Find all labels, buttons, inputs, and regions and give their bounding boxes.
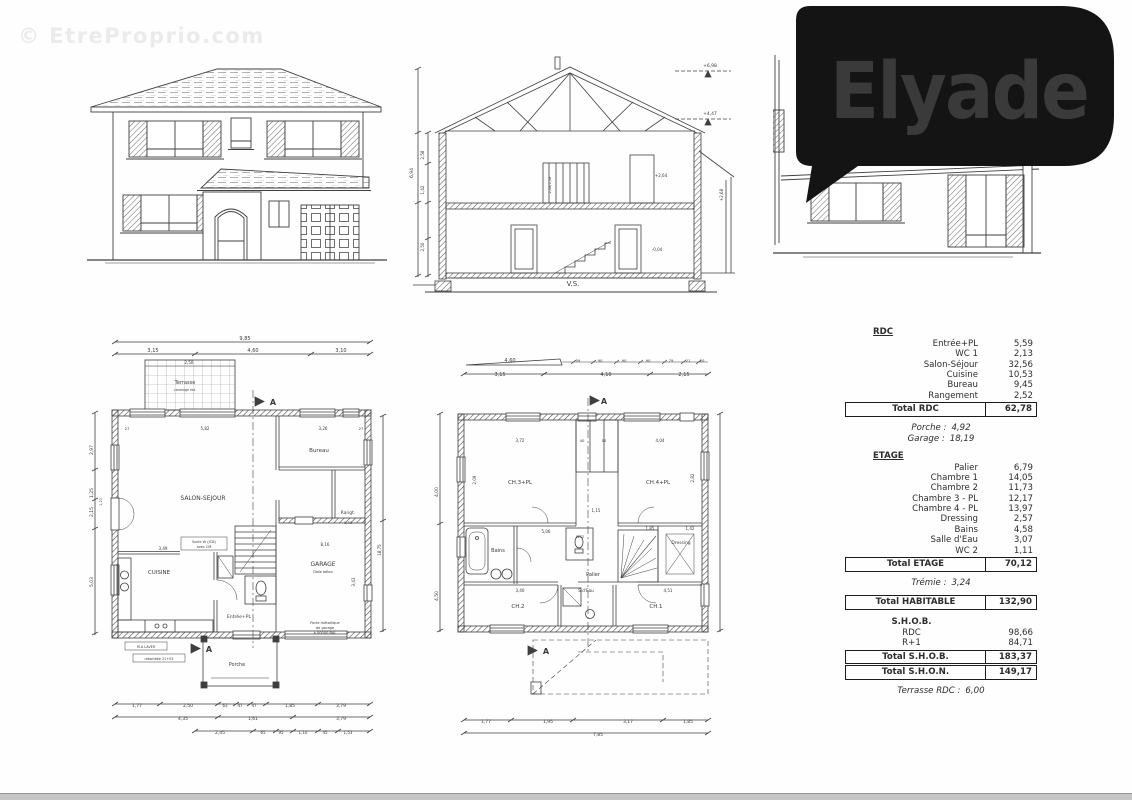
- drawing-label: 1,20: [99, 498, 103, 506]
- area-row: Total S.H.O.N. 149,17: [845, 665, 1037, 680]
- area-row-label: Bains: [845, 526, 987, 535]
- drawing-label: 3,15: [147, 348, 158, 354]
- drawing-label: 4,50: [434, 591, 440, 601]
- drawing-label: Porche: [229, 662, 245, 668]
- watermark: © EtreProprio.com: [18, 24, 265, 48]
- area-row-value: 149,17: [986, 668, 1036, 677]
- area-row: Porche : 4,92: [845, 423, 1037, 433]
- drawing-label: GARAGE: [310, 561, 335, 568]
- drawing-label: 9,85: [239, 336, 250, 342]
- drawing-label: 21: [686, 358, 691, 363]
- logo-text: Elyade: [830, 47, 1088, 137]
- area-row: Chambre 4 - PL 13,97: [845, 504, 1037, 514]
- drawing-label: 20: [700, 358, 705, 363]
- drawing-label: Palier: [586, 572, 601, 578]
- drawing-label: 5,82: [201, 426, 210, 431]
- drawing-label: 2,45: [215, 730, 225, 736]
- drawing-label: 90: [598, 358, 603, 363]
- drawing-label: à 00000 RAL: [314, 631, 337, 635]
- drawing-label: 18,75: [377, 544, 382, 556]
- area-row: Bureau 9,45: [845, 381, 1037, 391]
- area-row-value: 62,78: [986, 405, 1036, 414]
- area-row: Palier 6,79: [845, 463, 1037, 473]
- drawing-label: A: [543, 647, 550, 656]
- area-table: RDC Entrée+PL 5,59 WC 1 2,13 Salon-Séjou…: [845, 326, 1037, 697]
- drawing-label: Socle W (JCB): [192, 540, 216, 544]
- drawing-label: avec CM: [197, 545, 212, 549]
- area-row-value: 183,37: [986, 653, 1036, 662]
- drawing-label: 1,85: [285, 703, 295, 709]
- drawing-label: -0,04: [652, 247, 663, 252]
- area-row: Dressing 2,57: [845, 515, 1037, 525]
- area-row-label: Cuisine: [845, 371, 987, 380]
- drawing-label: Dalle béton: [313, 570, 333, 574]
- drawing-label: A: [206, 645, 213, 654]
- drawing-label: Rangt.: [341, 510, 356, 516]
- drawing-label: 8,16: [321, 542, 330, 547]
- area-row: S.H.O.B.: [845, 616, 1037, 628]
- drawing-label: 1,25: [89, 488, 95, 498]
- drawing-label: 2,15: [89, 507, 95, 517]
- area-row-value: 98,66: [987, 629, 1037, 638]
- drawing-label: de garage: [316, 626, 335, 630]
- drawing-label: 2,97: [89, 445, 95, 455]
- drawing-label: 47: [237, 703, 243, 708]
- drawing-label: 65: [260, 730, 266, 735]
- drawing-label: Dressing: [671, 540, 690, 546]
- drawing-label: CH.4+PL: [646, 480, 671, 486]
- scanned-plan-page: © EtreProprio.com: [0, 0, 1132, 800]
- drawing-label: Porte métallique: [310, 621, 340, 625]
- area-row-label: Rangement: [845, 392, 987, 401]
- area-row: Entrée+PL 5,59: [845, 339, 1037, 349]
- drawing-label: CH.1: [649, 604, 662, 610]
- area-row-label: WC 1: [845, 350, 987, 359]
- area-row-value: 32,56: [987, 361, 1037, 370]
- area-row-label: S.H.O.B.: [845, 618, 987, 627]
- drawing-label: 3,49: [159, 546, 168, 551]
- area-row-label: Chambre 4 - PL: [845, 505, 987, 514]
- area-row-value: 2,52: [987, 392, 1037, 401]
- drawing-label: 3,17: [623, 719, 633, 725]
- area-row-label: Salon-Séjour: [845, 361, 987, 370]
- drawing-label: 2,82: [690, 473, 695, 482]
- area-row-value: 3,24: [951, 579, 970, 588]
- drawing-label: Bains: [491, 548, 505, 554]
- drawing-label: 1,15: [592, 508, 601, 513]
- drawing-label: 2,58: [420, 150, 425, 159]
- area-row-value: 70,12: [986, 560, 1036, 569]
- area-row-label: Chambre 1: [845, 474, 987, 483]
- area-row-value: 1,11: [987, 547, 1037, 556]
- area-row-label: Trémie :: [911, 579, 946, 588]
- drawing-label: 3,15: [494, 372, 505, 378]
- area-row-value: 11,73: [987, 484, 1037, 493]
- drawing-label: Bureau: [309, 448, 329, 454]
- area-row-label: Entrée+PL: [845, 340, 987, 349]
- area-row-value: 10,53: [987, 371, 1037, 380]
- area-row: Total RDC 62,78: [845, 402, 1037, 417]
- area-row-label: Total ETAGE: [846, 558, 986, 571]
- area-row-value: 13,97: [987, 505, 1037, 514]
- area-row-value: 84,71: [987, 639, 1037, 648]
- area-row: ETAGE: [845, 450, 1037, 463]
- area-row-value: 6,79: [987, 464, 1037, 473]
- area-row-label: RDC: [845, 629, 987, 638]
- drawing-label: carrelage ext.: [174, 388, 196, 392]
- scan-edge-band: [0, 793, 1132, 800]
- drawing-label: 90: [646, 358, 651, 363]
- cross-section-drawing: V.S.+6,98+4,47+2,64-0,04+2,686,942,581,4…: [405, 55, 735, 295]
- drawing-label: V.S.: [567, 280, 580, 288]
- drawing-label: +2,64: [655, 173, 668, 178]
- area-row: Bains 4,58: [845, 525, 1037, 535]
- drawing-label: +6,98: [703, 63, 717, 69]
- drawing-label: 4,04: [656, 438, 665, 443]
- area-row: [845, 589, 1037, 595]
- drawing-label: 3,26: [319, 426, 328, 431]
- drawing-label: 3,40: [516, 588, 525, 593]
- drawing-label: SALON-SEJOUR: [180, 495, 225, 502]
- area-row: Salon-Séjour 32,56: [845, 360, 1037, 370]
- elyade-logo: Elyade: [796, 6, 1114, 206]
- area-row-label: R+1: [845, 639, 987, 648]
- area-row: Total HABITABLE 132,90: [845, 595, 1037, 610]
- drawing-label: 2,09: [472, 475, 477, 484]
- drawing-label: 1,85: [646, 526, 655, 531]
- drawing-label: CH.3+PL: [508, 480, 533, 486]
- drawing-label: 6,94: [409, 168, 415, 178]
- drawing-label: WC2: [576, 535, 584, 539]
- area-row: Trémie : 3,24: [845, 578, 1037, 588]
- rdc-floor-plan-drawing: 9,853,154,603,102,50Terrassecarrelage ex…: [85, 330, 400, 745]
- drawing-label: CUISINE: [148, 570, 171, 576]
- drawing-label: 47: [251, 703, 257, 708]
- area-row-value: 3,07: [987, 536, 1037, 545]
- area-row: Total ETAGE 70,12: [845, 557, 1037, 572]
- drawing-label: 4,60: [504, 358, 515, 364]
- area-row: Cuisine 10,53: [845, 370, 1037, 380]
- area-row-label: Dressing: [845, 515, 987, 524]
- area-row: RDC: [845, 326, 1037, 339]
- front-elevation-drawing: [85, 55, 400, 280]
- area-row: Garage : 18,19: [845, 434, 1037, 444]
- area-row-label: Total S.H.O.N.: [846, 666, 986, 679]
- area-row-value: 14,05: [987, 474, 1037, 483]
- area-row: RDC 98,66: [845, 628, 1037, 638]
- area-row-label: Bureau: [845, 381, 987, 390]
- drawing-label: 1,85: [683, 719, 693, 725]
- drawing-label: 1,42: [686, 526, 695, 531]
- drawing-label: 45: [322, 730, 328, 735]
- drawing-label: 5,06: [542, 529, 551, 534]
- drawing-label: 40: [580, 438, 585, 443]
- drawing-label: 27: [359, 426, 364, 431]
- drawing-label: 79: [669, 358, 674, 363]
- drawing-label: 27: [125, 426, 130, 431]
- drawing-label: Entrée+PL: [227, 613, 252, 620]
- drawing-label: 59: [576, 358, 581, 363]
- area-row-label: Porche :: [911, 424, 946, 433]
- drawing-label: A: [601, 397, 608, 406]
- drawing-label: A: [270, 398, 277, 407]
- area-row-label: Terrasse RDC :: [897, 687, 960, 696]
- area-row-value: 12,17: [987, 495, 1037, 504]
- area-row: Chambre 1 14,05: [845, 473, 1037, 483]
- drawing-label: 95: [278, 730, 284, 735]
- area-row-label: Total S.H.O.B.: [846, 651, 986, 664]
- area-row: Chambre 2 11,73: [845, 483, 1037, 493]
- drawing-label: 4,60: [247, 348, 258, 354]
- drawing-label: 2,50: [185, 360, 194, 365]
- drawing-label: 1,42: [420, 185, 425, 194]
- area-row-value: 2,57: [987, 515, 1037, 524]
- area-row: Chambre 3 - PL 12,17: [845, 494, 1037, 504]
- drawing-label: Terrasse: [174, 380, 196, 386]
- drawing-label: 2,50: [183, 703, 193, 709]
- area-row-value: 18,19: [950, 435, 975, 444]
- drawing-label: 2,48/2,58: [548, 177, 552, 194]
- drawing-label: +4,47: [703, 111, 717, 117]
- drawing-label: 7,85: [593, 732, 603, 738]
- drawing-label: 1,77: [481, 719, 491, 725]
- area-row-label: WC 2: [845, 547, 987, 556]
- area-row-label: Garage :: [908, 435, 945, 444]
- area-row: Rangement 2,52: [845, 391, 1037, 401]
- area-row-value: 6,00: [965, 687, 984, 696]
- area-row-label: Salle d'Eau: [845, 536, 987, 545]
- drawing-label: 4,35: [178, 716, 188, 722]
- drawing-label: S.d'Eau: [578, 588, 594, 593]
- area-row-value: 9,45: [987, 381, 1037, 390]
- area-row-label: ETAGE: [845, 452, 987, 461]
- drawing-label: 3,79: [336, 703, 346, 709]
- area-row-value: 4,92: [951, 424, 970, 433]
- drawing-label: 3,43: [351, 577, 356, 586]
- drawing-label: 90: [622, 358, 627, 363]
- area-row-label: Total RDC: [846, 403, 986, 416]
- drawing-label: 2,50: [420, 242, 425, 251]
- drawing-label: 5,03: [89, 577, 95, 587]
- area-row-label: Total HABITABLE: [846, 596, 986, 609]
- area-row-label: RDC: [845, 328, 987, 337]
- drawing-label: 50: [602, 438, 607, 443]
- area-row-label: Chambre 2: [845, 484, 987, 493]
- area-row-value: 4,58: [987, 526, 1037, 535]
- drawing-label: 3,72: [516, 438, 525, 443]
- drawing-label: 1,61: [248, 716, 258, 722]
- drawing-label: 4,51: [664, 588, 673, 593]
- drawing-label: 4,00: [434, 487, 440, 497]
- drawing-label: 1,53: [344, 730, 353, 735]
- area-row: Terrasse RDC : 6,00: [845, 686, 1037, 696]
- drawing-label: retombée 21+05: [145, 657, 174, 661]
- area-row: WC 2 1,11: [845, 546, 1037, 556]
- drawing-label: 1,95: [543, 719, 553, 725]
- area-row: WC 1 2,13: [845, 349, 1037, 359]
- drawing-label: 1,10: [299, 730, 308, 735]
- drawing-label: 4,10: [600, 372, 611, 378]
- area-row: Salle d'Eau 3,07: [845, 535, 1037, 545]
- area-row-value: 2,13: [987, 350, 1037, 359]
- area-row-label: Palier: [845, 464, 987, 473]
- area-row-value: 132,90: [986, 598, 1036, 607]
- area-row-value: 5,59: [987, 340, 1037, 349]
- area-row: Total S.H.O.B. 183,37: [845, 650, 1037, 665]
- drawing-label: 2,15: [678, 372, 689, 378]
- drawing-label: +2,68: [719, 188, 724, 201]
- drawing-label: 1,77: [132, 703, 142, 709]
- area-row-label: Chambre 3 - PL: [845, 495, 987, 504]
- drawing-label: 63: [222, 703, 228, 708]
- drawing-label: M.A LAVER: [137, 645, 156, 649]
- drawing-label: CH.2: [511, 604, 524, 610]
- area-row: R+1 84,71: [845, 638, 1037, 648]
- drawing-label: 3,79: [336, 716, 346, 722]
- drawing-label: 3,10: [335, 348, 346, 354]
- drawing-label: 1,43: [344, 520, 353, 525]
- etage-floor-plan-drawing: 4,60599090907921203,154,102,15A3,7240504…: [428, 352, 743, 757]
